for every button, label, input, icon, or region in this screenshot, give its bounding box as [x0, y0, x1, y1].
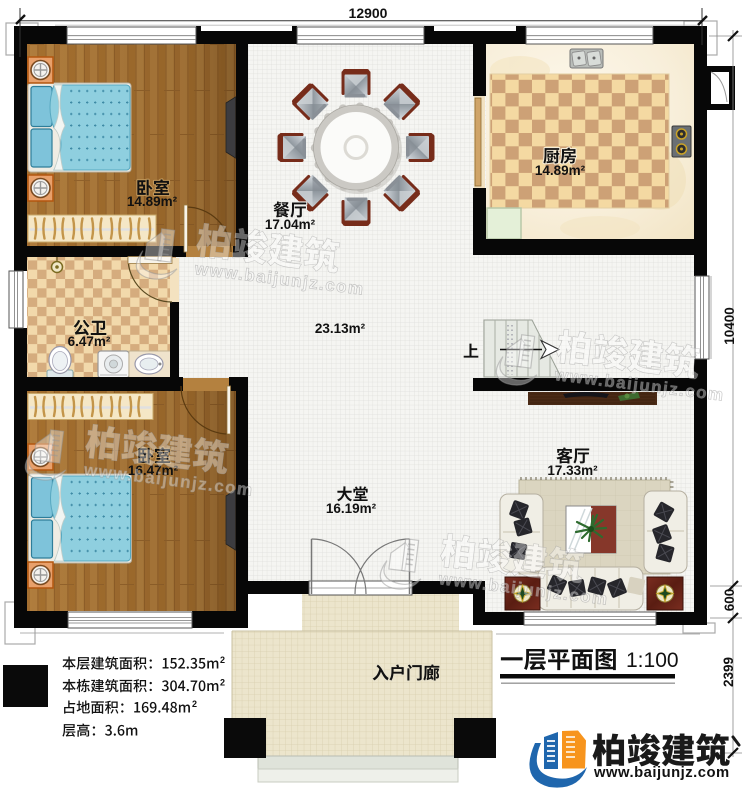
- svg-text:www.baijunjz.com: www.baijunjz.com: [593, 765, 730, 781]
- svg-text:17.33m²: 17.33m²: [547, 463, 598, 478]
- svg-text:2: 2: [192, 699, 197, 709]
- svg-text:16.19m²: 16.19m²: [326, 501, 377, 516]
- svg-text:14.89m²: 14.89m²: [535, 163, 586, 178]
- svg-text:2: 2: [220, 678, 225, 688]
- svg-text:10400: 10400: [722, 307, 737, 345]
- svg-text:6.47m²: 6.47m²: [68, 334, 111, 349]
- svg-text:17.04m²: 17.04m²: [265, 217, 316, 232]
- svg-text:12900: 12900: [349, 5, 388, 21]
- svg-text:23.13m²: 23.13m²: [315, 321, 366, 336]
- svg-text:14.89m²: 14.89m²: [127, 194, 178, 209]
- svg-text:2399: 2399: [721, 657, 736, 687]
- svg-text:2: 2: [220, 655, 225, 665]
- svg-text:1:100: 1:100: [626, 649, 679, 672]
- svg-text:600: 600: [722, 589, 737, 612]
